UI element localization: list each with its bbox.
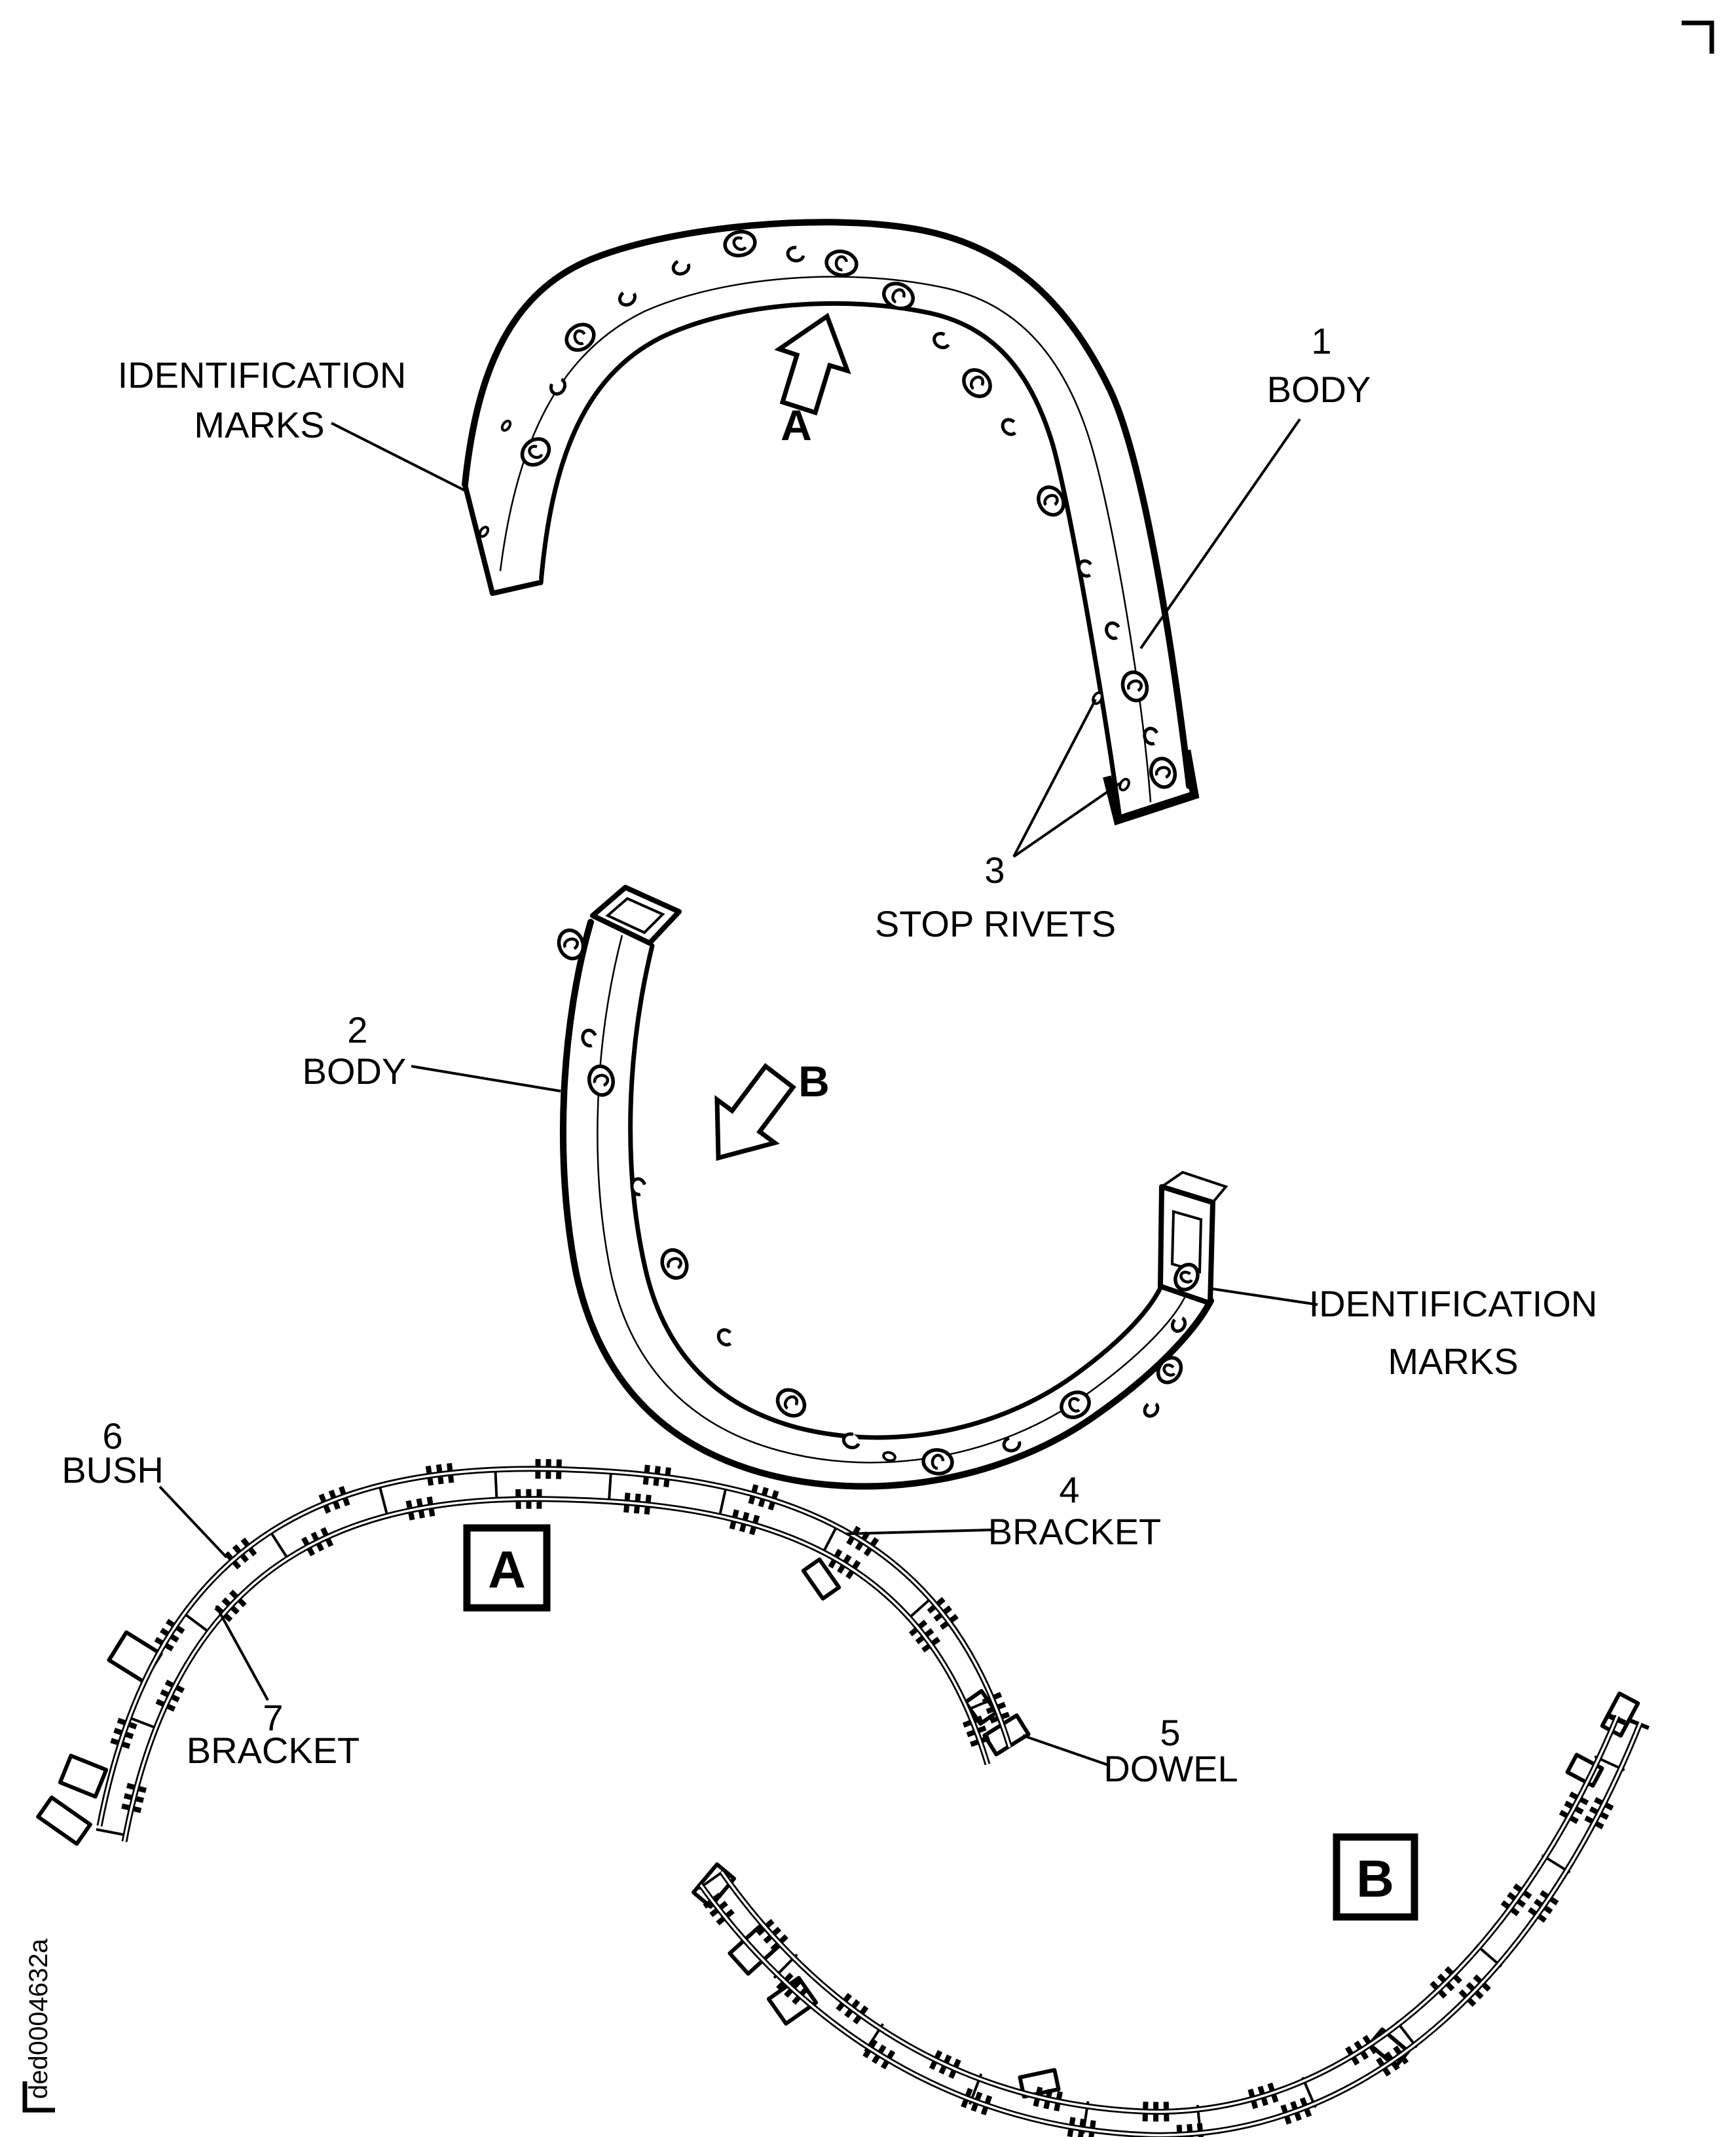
rivet-hole [824,249,859,277]
dowel-name: DOWEL [1103,1748,1238,1789]
callout-dowel: 5 DOWEL [1023,1712,1238,1789]
diagram-page: ded0004632a [0,0,1736,2137]
body2-number: 2 [347,1009,367,1050]
small-hole [1104,621,1122,641]
body2-part [555,887,1226,1486]
leader-id-marks-right [1213,1289,1318,1305]
figure-code: ded0004632a [24,1939,53,2099]
body1-outer-edge [465,222,1189,786]
rivet-hole [1119,669,1151,704]
body2-face-line [597,935,1188,1462]
bush-clamps-outer [100,1469,1010,1826]
rivet-hole [1148,756,1178,790]
body1-name: BODY [1267,369,1371,410]
body2-outer-edge [563,922,1211,1486]
leader-bracket-lower [216,1606,268,1700]
id-marks-right-line1: IDENTIFICATION [1309,1283,1598,1324]
callout-bush: 6 BUSH [62,1415,227,1557]
callout-body2: 2 BODY [303,1009,561,1092]
body1-left-end-cap [465,485,542,593]
id-marks-right-line2: MARKS [1388,1341,1518,1382]
callout-body1: 1 BODY [1141,320,1371,648]
rivet-hole [773,1384,810,1421]
rivet-hole [723,229,757,259]
detail-b-marker: B [1337,1837,1414,1917]
rivet-hole [562,320,599,356]
end-bracket-tab [60,1756,106,1797]
body1-inner-edge [541,303,1119,813]
dowel-number: 5 [1160,1712,1180,1753]
view-arrow-a-label: A [781,401,812,449]
leader-stop-rivet-1 [1014,699,1096,857]
leader-bracket-upper [846,1530,991,1534]
small-hole [786,246,805,263]
stop-rivets-name: STOP RIVETS [875,903,1116,944]
body2-name: BODY [303,1050,407,1092]
small-hole [618,288,638,307]
callout-id-marks-top: IDENTIFICATION MARKS [118,354,469,492]
detail-b-letter: B [1356,1849,1394,1908]
id-marks-top-line1: IDENTIFICATION [118,354,407,396]
edge-hole [883,1451,896,1462]
rivet-hole [587,1064,616,1098]
detail-a-marker: A [467,1528,547,1608]
small-hole [581,1029,598,1047]
corner-mark-top-right [1682,23,1712,54]
stop-rivets-number: 3 [984,849,1005,891]
id-marks-top-line2: MARKS [194,404,324,445]
bush-name: BUSH [62,1449,164,1491]
bracket-upper-number: 4 [1059,1469,1079,1510]
leader-dowel [1023,1736,1110,1766]
rail-outer-core [100,1469,1010,1826]
small-hole [1000,417,1020,437]
body1-part [465,222,1194,820]
view-a-marker: A [779,316,847,449]
leader-stop-rivet-2 [1014,783,1120,857]
rivet-hole [922,1448,954,1476]
leader-id-marks-top [331,423,469,492]
end-bracket-tab [38,1798,90,1844]
small-hole [931,331,951,350]
small-hole [631,1178,646,1195]
rivet-hole [657,1246,691,1282]
small-hole [671,258,690,276]
body1-number: 1 [1311,320,1331,362]
body2-inner-edge [631,946,1163,1438]
rivet-hole [1153,1353,1185,1386]
small-hole [1142,1400,1160,1419]
view-arrow-b-icon [717,1066,793,1158]
view-b-marker: B [717,1057,830,1158]
view-arrow-b-label: B [798,1057,830,1106]
bracket-lower-name: BRACKET [187,1730,360,1771]
bracket-upper-name: BRACKET [988,1511,1162,1552]
edge-hole [500,420,511,432]
callout-bracket-upper: 4 BRACKET [846,1469,1161,1552]
leader-body1 [1141,419,1300,648]
detail-a-letter: A [488,1540,526,1599]
bracket-plate [109,1632,160,1681]
body2-top-end-cap [593,887,679,943]
leader-bush [160,1487,227,1557]
leader-body2 [411,1066,561,1091]
small-hole [716,1327,735,1347]
callout-stop-rivets: 3 STOP RIVETS [875,699,1120,944]
rail-outer [100,1469,1010,1826]
rivet-hole [959,365,996,402]
callout-id-marks-right: IDENTIFICATION MARKS [1213,1283,1597,1382]
view-arrow-a-icon [779,316,847,413]
small-hole [1170,1315,1188,1333]
